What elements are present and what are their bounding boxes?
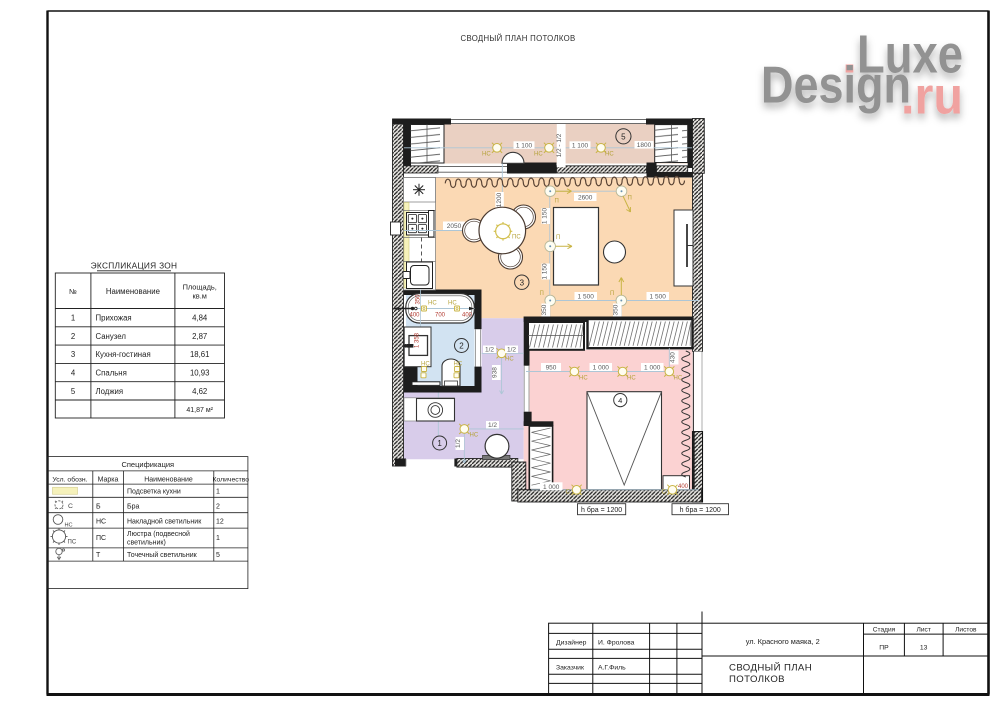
svg-text:2: 2 (216, 503, 220, 510)
svg-text:НС: НС (605, 152, 614, 158)
svg-text:1 100: 1 100 (516, 142, 533, 149)
svg-text:ул. Красного маяка, 2: ул. Красного маяка, 2 (746, 637, 820, 646)
svg-text:1/2: 1/2 (488, 422, 497, 429)
svg-text:ПОТОЛКОВ: ПОТОЛКОВ (729, 674, 785, 685)
svg-text:1200: 1200 (496, 192, 503, 207)
svg-text:2: 2 (459, 342, 464, 351)
svg-text:1/2: 1/2 (507, 347, 516, 354)
svg-text:350: 350 (541, 304, 548, 315)
svg-text:2: 2 (71, 332, 75, 341)
svg-text:И. Фролова: И. Фролова (598, 640, 635, 647)
svg-text:Санузел: Санузел (96, 332, 127, 341)
svg-text:2050: 2050 (447, 223, 462, 230)
svg-text:1/2: 1/2 (485, 347, 494, 354)
svg-text:НС: НС (627, 376, 636, 382)
svg-text:НС: НС (421, 362, 430, 368)
svg-text:Усл. обозн.: Усл. обозн. (52, 476, 87, 484)
svg-text:Прихожая: Прихожая (96, 314, 132, 323)
svg-text:Накладной светильник: Накладной светильник (127, 518, 202, 526)
svg-text:ЭКСПЛИКАЦИЯ ЗОН: ЭКСПЛИКАЦИЯ ЗОН (91, 261, 178, 271)
svg-text:Бра: Бра (127, 503, 139, 510)
svg-text:Точечный светильник: Точечный светильник (127, 551, 198, 559)
svg-text:5: 5 (621, 132, 626, 141)
svg-text:400: 400 (678, 484, 689, 490)
svg-text:ПС: ПС (96, 535, 106, 542)
svg-text:350: 350 (613, 304, 620, 315)
svg-text:НС: НС (534, 152, 543, 158)
svg-text:НС: НС (428, 301, 437, 307)
svg-text:№: № (69, 287, 77, 296)
svg-text:3: 3 (71, 350, 75, 359)
svg-text:13: 13 (920, 645, 928, 652)
svg-text:700: 700 (435, 313, 446, 319)
svg-text:П: П (540, 291, 544, 297)
svg-text:НС: НС (454, 362, 463, 368)
svg-text:Площадь,: Площадь, (183, 283, 217, 292)
svg-text:Заказчик: Заказчик (556, 665, 584, 672)
svg-text:2,87: 2,87 (192, 332, 207, 341)
svg-text:12: 12 (216, 519, 224, 526)
svg-text:5: 5 (71, 387, 76, 396)
svg-text:350: 350 (415, 294, 421, 305)
svg-text:4: 4 (71, 369, 76, 378)
svg-text:1: 1 (216, 489, 220, 496)
svg-text:3: 3 (520, 278, 525, 287)
svg-text:НС: НС (65, 523, 73, 529)
svg-text:НС: НС (96, 519, 106, 526)
svg-text:светильник): светильник) (127, 540, 166, 547)
svg-text:Подсветка кухни: Подсветка кухни (127, 489, 181, 496)
svg-text:4: 4 (618, 396, 622, 405)
svg-text:ПС: ПС (68, 540, 77, 546)
svg-text:Т: Т (96, 552, 101, 559)
svg-text:1: 1 (437, 439, 442, 448)
svg-text:1/2 - 1/2: 1/2 - 1/2 (556, 133, 563, 157)
svg-text:2600: 2600 (578, 195, 593, 202)
svg-text:938: 938 (492, 367, 499, 378)
svg-text:НС: НС (482, 152, 491, 158)
svg-text:Люстра (подвесной: Люстра (подвесной (127, 530, 190, 538)
svg-text:НС: НС (505, 357, 514, 363)
svg-text:430: 430 (670, 352, 677, 363)
svg-text:41,87 м²: 41,87 м² (186, 407, 213, 414)
svg-text:кв.м: кв.м (193, 292, 207, 301)
svg-text:1 000: 1 000 (644, 365, 661, 372)
svg-text:П: П (555, 199, 559, 205)
svg-text:1 500: 1 500 (578, 294, 595, 301)
svg-text:1: 1 (71, 314, 75, 323)
svg-text:НС: НС (579, 376, 588, 382)
svg-text:ПР: ПР (879, 645, 889, 652)
svg-text:Дизайнер: Дизайнер (556, 639, 587, 647)
svg-text:10,93: 10,93 (190, 369, 210, 378)
svg-text:Лоджия: Лоджия (96, 387, 124, 396)
svg-text:Стадия: Стадия (873, 627, 896, 634)
svg-text:18,61: 18,61 (190, 350, 210, 359)
svg-text:400: 400 (409, 313, 420, 319)
svg-text:Design: Design (761, 56, 911, 114)
svg-text:1 150: 1 150 (542, 207, 549, 224)
svg-text:1 100: 1 100 (572, 142, 589, 149)
svg-text:.ru: .ru (901, 68, 963, 126)
svg-text:1800: 1800 (637, 142, 652, 149)
svg-text:НС: НС (674, 376, 683, 382)
svg-text:ПС: ПС (512, 235, 521, 241)
svg-text:А.Г.Филь: А.Г.Филь (598, 665, 626, 672)
svg-text:С: С (566, 490, 571, 496)
svg-text:С: С (662, 490, 667, 496)
svg-text:П: П (556, 235, 560, 241)
svg-text:h бра = 1200: h бра = 1200 (680, 506, 721, 514)
svg-text:Марка: Марка (98, 477, 119, 484)
svg-text:1/2: 1/2 (455, 439, 462, 448)
svg-text:Наименование: Наименование (106, 287, 160, 296)
svg-text:1 150: 1 150 (542, 263, 549, 280)
svg-text:Кухня-гостиная: Кухня-гостиная (96, 350, 151, 359)
svg-text:Наименование: Наименование (144, 477, 193, 484)
svg-text:4,62: 4,62 (192, 387, 207, 396)
svg-text:5: 5 (216, 552, 220, 559)
svg-text:1 000: 1 000 (593, 365, 610, 372)
svg-text:СВОДНЫЙ ПЛАН ПОТОЛКОВ: СВОДНЫЙ ПЛАН ПОТОЛКОВ (461, 34, 576, 43)
svg-text:НС: НС (470, 433, 479, 439)
svg-text:1: 1 (216, 535, 220, 542)
svg-text:1 000: 1 000 (543, 484, 560, 491)
svg-text:400: 400 (462, 313, 473, 319)
svg-text:СВОДНЫЙ ПЛАН: СВОДНЫЙ ПЛАН (729, 662, 812, 674)
svg-text:1 358: 1 358 (415, 332, 421, 348)
svg-text:950: 950 (546, 365, 557, 372)
svg-text:НС: НС (448, 301, 457, 307)
svg-text:1 500: 1 500 (650, 294, 667, 301)
svg-text:h бра = 1200: h бра = 1200 (581, 506, 622, 514)
svg-text:4,84: 4,84 (192, 314, 208, 323)
svg-text:С: С (68, 503, 73, 510)
svg-text:Количество: Количество (213, 477, 250, 484)
svg-text:Листов: Листов (955, 627, 977, 634)
svg-text:П: П (628, 196, 632, 202)
svg-text:Спецификация: Спецификация (121, 460, 174, 469)
svg-text:Спальня: Спальня (96, 369, 127, 378)
svg-text:П: П (610, 291, 614, 297)
svg-text:Б: Б (96, 503, 101, 510)
svg-text:Лист: Лист (917, 627, 931, 634)
